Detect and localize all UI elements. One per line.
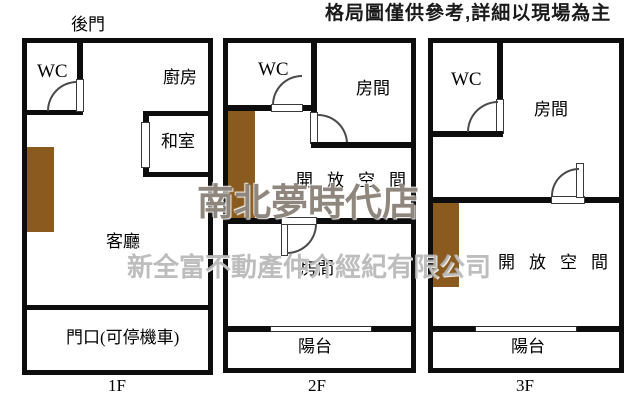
stairs-1f — [27, 147, 54, 232]
room-label-wc-2f: WC — [258, 60, 289, 79]
room-label-room-top-2f: 房間 — [356, 80, 390, 97]
room-label-wc-3f: WC — [451, 70, 482, 89]
wall — [228, 326, 270, 332]
disclaimer-title: 格局圖僅供參考,詳細以現場為主 — [325, 4, 611, 23]
door-leaf — [271, 104, 303, 112]
door-leaf — [310, 112, 318, 144]
watermark-store-name: 南北夢時代店 — [197, 185, 419, 222]
balcony-window — [475, 326, 577, 332]
wall — [223, 38, 416, 43]
wall — [311, 142, 416, 148]
wall — [619, 38, 624, 373]
wall — [372, 326, 416, 332]
floor-label-2f: 2F — [308, 377, 326, 394]
room-label-wc-1f: WC — [37, 62, 68, 81]
wall — [27, 305, 208, 310]
wall — [143, 111, 208, 116]
door-leaf — [76, 79, 84, 112]
door-arc — [287, 224, 317, 254]
door-arc — [467, 101, 498, 132]
room-label-open-space-3f: 開放空間 — [498, 254, 622, 271]
door-arc — [551, 168, 579, 196]
wall — [583, 197, 624, 203]
wall — [497, 42, 503, 99]
room-label-kitchen: 廚房 — [163, 69, 197, 86]
wall — [223, 368, 416, 373]
door-arc — [318, 114, 348, 144]
floor-label-1f: 1F — [108, 377, 126, 394]
wall — [22, 38, 213, 43]
room-label-room-3f: 房間 — [534, 101, 568, 118]
wall — [22, 370, 213, 375]
floor-label-3f: 3F — [516, 377, 534, 394]
floor-plan-canvas: 格局圖僅供參考,詳細以現場為主 後門 WC 廚房 和室 客廳 門口(可停機車) … — [0, 0, 640, 411]
balcony-window — [270, 326, 372, 332]
room-label-living: 客廳 — [106, 233, 140, 250]
door-arc — [47, 81, 77, 111]
wall — [428, 38, 624, 43]
room-label-entrance: 門口(可停機車) — [66, 329, 179, 346]
room-label-tatami: 和室 — [161, 133, 195, 150]
wall — [428, 326, 475, 332]
room-label-balcony-3f: 陽台 — [511, 338, 545, 355]
wall — [577, 326, 624, 332]
sliding-door — [141, 122, 150, 168]
wall — [77, 43, 83, 79]
wall — [143, 172, 208, 177]
watermark-company-name: 新全富不動產仲介經紀有限公司 — [127, 255, 491, 281]
room-label-back-door: 後門 — [71, 16, 105, 33]
wall — [311, 43, 317, 112]
wall — [428, 368, 624, 373]
room-label-balcony-2f: 陽台 — [298, 338, 332, 355]
